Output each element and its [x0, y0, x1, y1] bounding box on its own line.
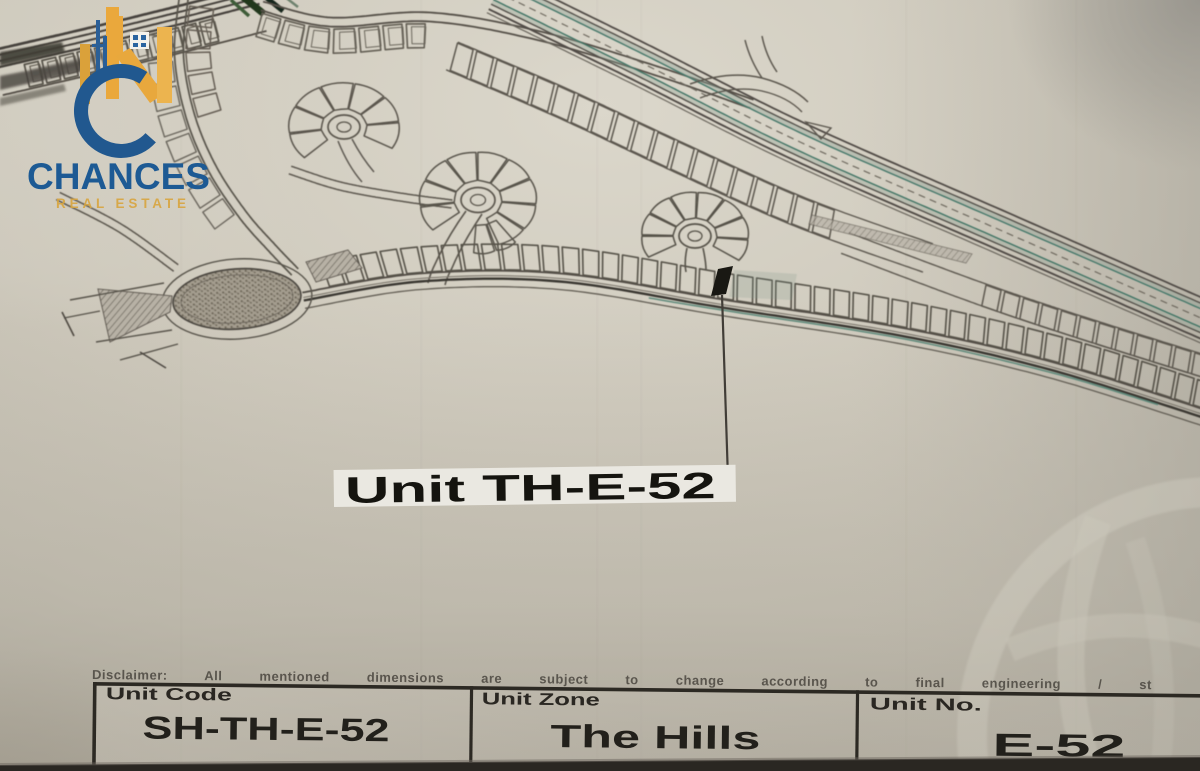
svg-text:Unit TH-E-52: Unit TH-E-52 — [345, 465, 717, 511]
svg-text:REAL ESTATE: REAL ESTATE — [56, 196, 186, 211]
svg-text:Unit Zone: Unit Zone — [482, 689, 600, 709]
svg-text:CHANCES: CHANCES — [27, 156, 210, 197]
svg-text:SH-TH-E-52: SH-TH-E-52 — [142, 710, 389, 749]
svg-text:The Hills: The Hills — [550, 718, 760, 756]
svg-text:Unit No.: Unit No. — [870, 694, 982, 714]
svg-text:Unit Code: Unit Code — [106, 684, 232, 704]
